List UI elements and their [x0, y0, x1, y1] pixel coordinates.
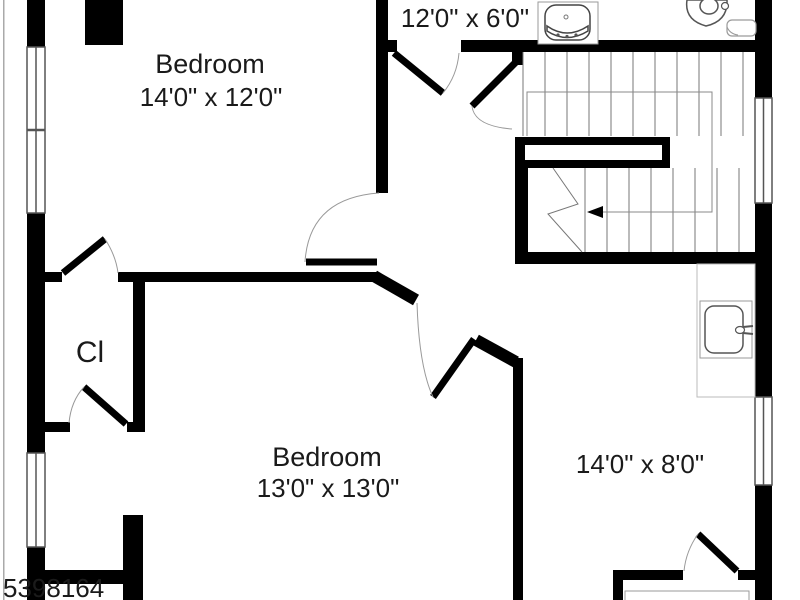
stair-treads-upper: [523, 52, 743, 136]
vanity-sink-icon: [538, 2, 598, 44]
listing-id-watermark: 5398164: [3, 573, 104, 600]
bathroom-dimensions: 12'0" x 6'0": [401, 3, 529, 33]
stair-direction-arrow: [587, 206, 603, 218]
closet-label: Cl: [76, 336, 104, 369]
bonus-room-dimensions: 14'0" x 8'0": [576, 449, 704, 479]
bedroom1-door: [305, 193, 379, 262]
closet-bottom-door: [69, 387, 126, 424]
stair-walk-line: [527, 92, 712, 252]
window-left-upper: [27, 47, 45, 213]
bathroom-door: [394, 53, 459, 93]
window-right-upper: [755, 98, 772, 203]
stair-landing-wall: [517, 137, 670, 168]
bedroom2-door: [417, 303, 474, 397]
window-left-lower: [27, 453, 45, 547]
bedroom2-dimensions: 13'0" x 13'0": [257, 473, 400, 503]
stair-treads-lower: [585, 168, 739, 252]
bedroom1-label: Bedroom: [155, 49, 265, 79]
staircase: [517, 52, 743, 252]
stair-door: [472, 62, 516, 129]
window-right-lower: [755, 397, 772, 485]
doors: [63, 53, 737, 571]
toilet-icon: [687, 0, 756, 36]
bedroom2-label: Bedroom: [272, 442, 382, 472]
bottom-room-inner-outline: [625, 591, 749, 600]
floor-plan: Bedroom 14'0" x 12'0" 12'0" x 6'0" Cl Be…: [0, 0, 800, 600]
bedroom1-dimensions: 14'0" x 12'0": [140, 82, 283, 112]
floor-plan-page: Bedroom 14'0" x 12'0" 12'0" x 6'0" Cl Be…: [0, 0, 800, 600]
bathroom-sink-icon: [697, 264, 755, 397]
bottom-right-door: [684, 534, 737, 571]
closet-top-door: [63, 239, 118, 273]
page-edge-line: [3, 0, 5, 600]
diagonal-walls: [374, 276, 516, 362]
stair-break-line: [548, 168, 582, 252]
